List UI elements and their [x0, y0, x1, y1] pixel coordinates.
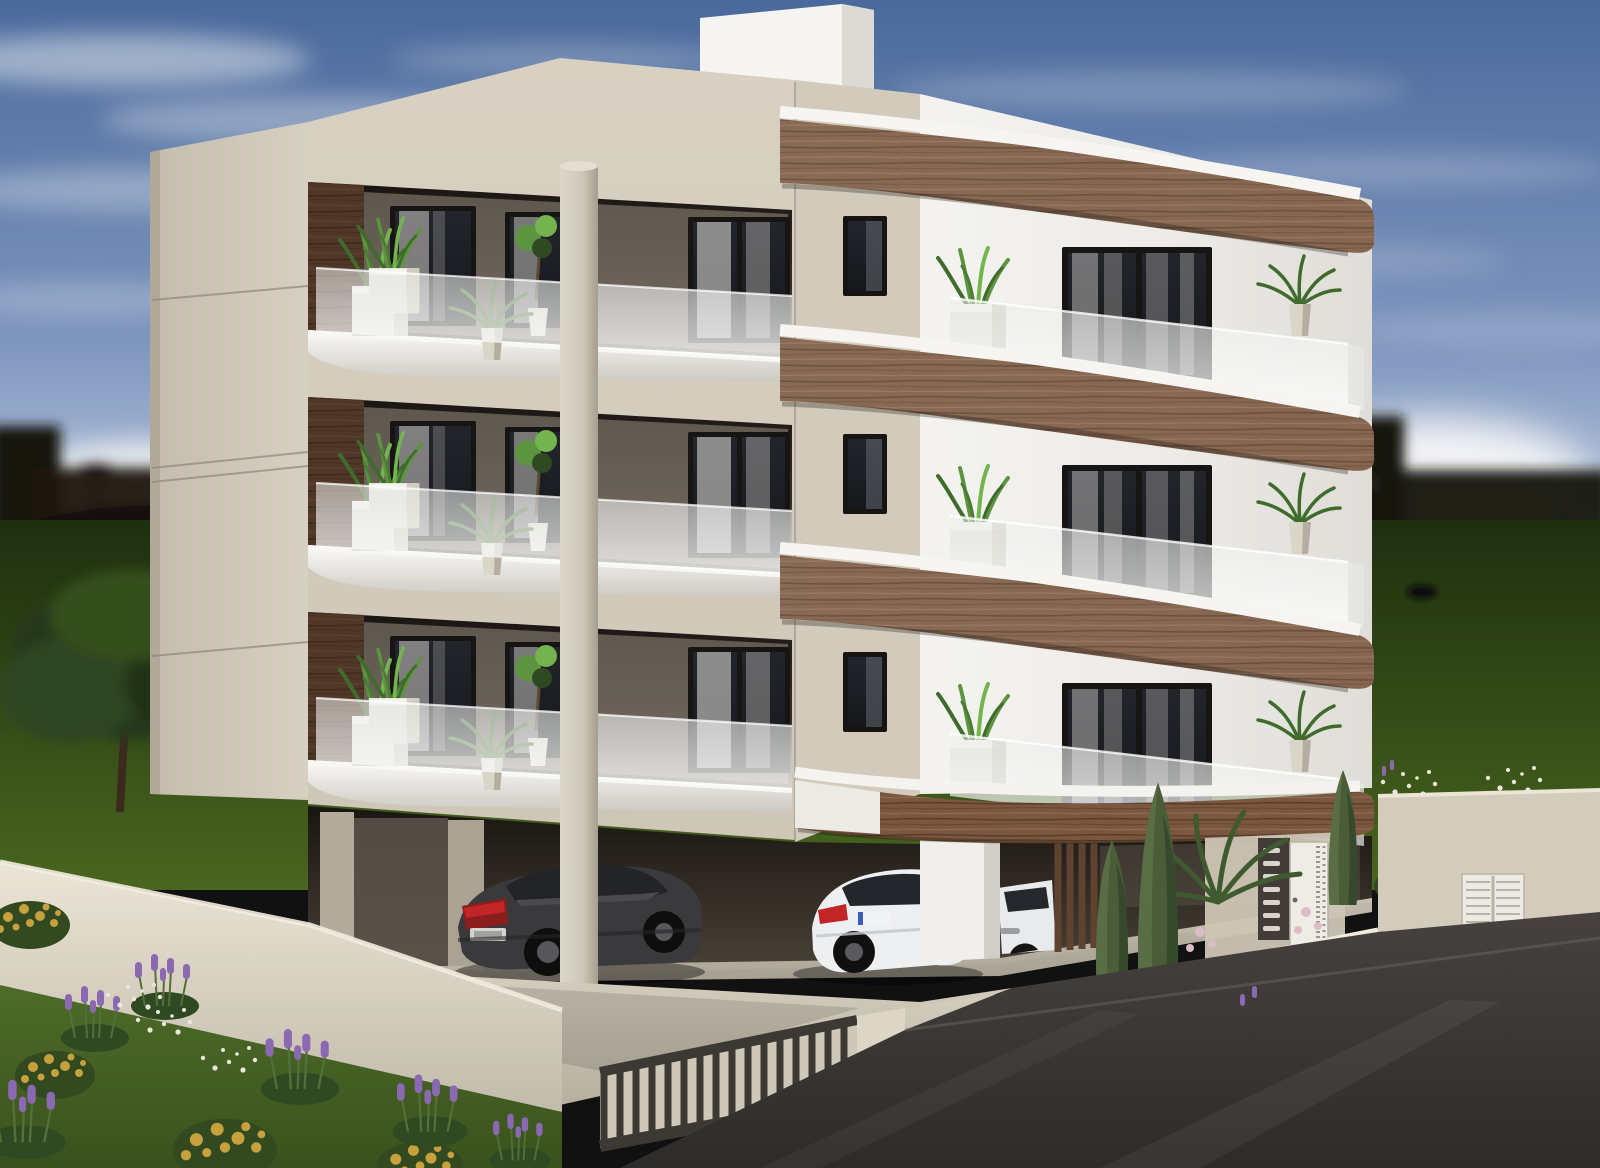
door-handle — [1293, 898, 1298, 903]
car-white-partial — [998, 880, 1056, 954]
round-column — [560, 161, 598, 987]
render-canvas — [0, 0, 1600, 1168]
carport-pier — [920, 838, 1000, 962]
apartment-building — [150, 58, 1374, 987]
left-facade-balconies — [308, 182, 792, 812]
distant-animal — [1407, 585, 1437, 599]
architectural-render — [0, 0, 1600, 1168]
west-end-wall — [150, 122, 308, 800]
